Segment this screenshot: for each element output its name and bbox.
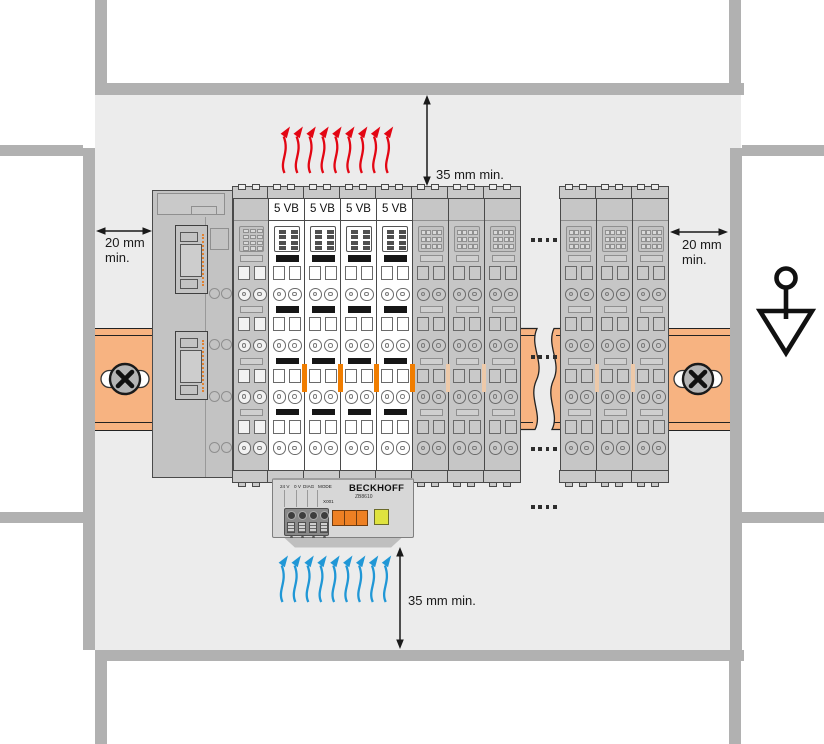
led-indicator bbox=[605, 230, 610, 235]
terminal-slot bbox=[492, 409, 515, 416]
module-top-notch bbox=[238, 184, 246, 190]
module-bottom-tab bbox=[417, 482, 425, 488]
terminal-contact-square bbox=[289, 369, 301, 383]
terminal-screw-contact bbox=[652, 441, 666, 455]
terminal-screw-contact bbox=[360, 288, 374, 302]
terminal-slot bbox=[640, 358, 663, 365]
dimension-label-top: 35 mm min. bbox=[436, 167, 504, 182]
led-indicator bbox=[641, 244, 646, 249]
terminal-screw-contact bbox=[580, 390, 594, 404]
terminal-slot bbox=[492, 358, 515, 365]
terminal-screw-contact-center bbox=[242, 394, 247, 399]
terminal-screw-contact bbox=[381, 339, 395, 353]
terminal-screw-contact-center bbox=[328, 292, 333, 297]
terminal-screw-contact-center bbox=[436, 343, 441, 348]
terminal-slot bbox=[240, 306, 263, 313]
terminal-slot bbox=[604, 306, 627, 313]
led-indicator bbox=[569, 237, 574, 242]
terminal-screw-contact-center bbox=[584, 446, 589, 451]
led-indicator bbox=[641, 237, 646, 242]
terminal-screw-contact bbox=[432, 288, 446, 302]
terminal-contact-square bbox=[345, 369, 357, 383]
dimension-label-right: 20 mm min. bbox=[682, 237, 722, 267]
heat-arrow bbox=[358, 127, 367, 174]
fan-status-block-divider bbox=[344, 510, 345, 527]
terminal-contact-square bbox=[617, 420, 629, 434]
terminal-contact-square bbox=[325, 420, 337, 434]
terminal-screw-contact-center bbox=[472, 292, 477, 297]
terminal-label-band: 5 VB bbox=[341, 199, 376, 221]
terminal-contact-square bbox=[238, 420, 250, 434]
fan-cartridge-base bbox=[278, 538, 408, 548]
terminal-led-block bbox=[602, 226, 628, 252]
terminal-screw-contact-center bbox=[472, 446, 477, 451]
led-indicator bbox=[432, 230, 437, 235]
dimension-arrow-bottom bbox=[395, 547, 405, 649]
terminal-screw-contact bbox=[345, 390, 359, 404]
heat-arrow bbox=[306, 127, 315, 174]
led-indicator bbox=[243, 229, 249, 233]
terminal-contact-square bbox=[581, 369, 593, 383]
terminal-screw-contact bbox=[309, 441, 323, 455]
terminal-screw-contact bbox=[565, 441, 579, 455]
terminal-contact-square bbox=[617, 266, 629, 280]
fan-terminal-label: 0 V bbox=[294, 484, 301, 489]
terminal-release-bar bbox=[312, 358, 335, 365]
terminal-contact-square bbox=[397, 420, 409, 434]
led-indicator bbox=[279, 246, 286, 250]
terminal-screw-contact-center bbox=[313, 394, 318, 399]
heat-arrow bbox=[371, 127, 380, 174]
terminal-contact-square bbox=[325, 317, 337, 331]
terminal-screw-contact bbox=[453, 288, 467, 302]
led-indicator bbox=[291, 241, 298, 245]
terminal-contact-square bbox=[254, 266, 266, 280]
terminal-slot bbox=[568, 409, 591, 416]
ethernet-port-bottom bbox=[180, 385, 198, 395]
terminal-voltage-label: 5 VB bbox=[269, 199, 304, 220]
led-indicator bbox=[432, 237, 437, 242]
led-indicator bbox=[399, 246, 406, 250]
terminal-screw-contact bbox=[324, 441, 338, 455]
terminal-contact-square bbox=[565, 420, 577, 434]
terminal-screw-contact bbox=[565, 339, 579, 353]
terminal-contact-square bbox=[653, 369, 665, 383]
ethernet-port bbox=[175, 225, 208, 294]
terminal-contact-square bbox=[361, 420, 373, 434]
terminal-screw-contact bbox=[504, 441, 518, 455]
led-indicator bbox=[291, 235, 298, 239]
terminal-screw-contact-center bbox=[584, 394, 589, 399]
terminal-release-bar bbox=[348, 306, 371, 313]
terminal-screw-contact-center bbox=[569, 394, 574, 399]
terminal-screw-contact-center bbox=[400, 394, 405, 399]
terminal-screw-contact-center bbox=[641, 343, 646, 348]
terminal-contact-square bbox=[505, 420, 517, 434]
terminal-screw-contact-center bbox=[385, 446, 390, 451]
io-gray-terminal bbox=[484, 199, 520, 470]
led-indicator bbox=[473, 237, 478, 242]
io-white-terminal: 5 VB bbox=[376, 199, 412, 470]
beckhoff-logo: BECKHOFF bbox=[349, 483, 404, 494]
led-indicator bbox=[387, 235, 394, 239]
fan-connector-clamp bbox=[298, 522, 306, 533]
led-indicator bbox=[646, 230, 651, 235]
led-indicator bbox=[437, 230, 442, 235]
terminal-screw-contact-center bbox=[641, 292, 646, 297]
module-bottom-tab bbox=[565, 482, 573, 488]
terminal-screw-contact bbox=[616, 441, 630, 455]
led-indicator bbox=[509, 230, 514, 235]
terminal-screw-contact-center bbox=[257, 446, 262, 451]
terminal-screw-contact bbox=[580, 339, 594, 353]
terminal-contact-square bbox=[653, 317, 665, 331]
terminal-slot bbox=[604, 358, 627, 365]
terminal-contact-square bbox=[254, 420, 266, 434]
terminal-screw-contact bbox=[238, 441, 252, 455]
led-indicator bbox=[250, 235, 256, 239]
led-indicator bbox=[574, 237, 579, 242]
heat-arrow bbox=[319, 127, 328, 174]
led-indicator bbox=[580, 230, 585, 235]
terminal-screw-contact bbox=[396, 441, 410, 455]
terminal-contact-square bbox=[565, 369, 577, 383]
led-indicator bbox=[580, 237, 585, 242]
terminal-screw-contact bbox=[309, 339, 323, 353]
coupler-top-tab bbox=[191, 206, 217, 215]
module-top-notch bbox=[651, 184, 659, 190]
led-indicator bbox=[243, 241, 249, 245]
terminal-slot bbox=[456, 409, 479, 416]
terminal-slot bbox=[456, 306, 479, 313]
terminal-screw-contact-center bbox=[457, 292, 462, 297]
earth-ground-icon bbox=[753, 261, 819, 359]
module-bottom-tab bbox=[601, 482, 609, 488]
terminal-contact-square bbox=[381, 266, 393, 280]
terminal-contact-square bbox=[565, 317, 577, 331]
terminal-screw-contact bbox=[309, 288, 323, 302]
terminal-contact-square bbox=[469, 369, 481, 383]
terminal-slot bbox=[568, 358, 591, 365]
module-top-notch bbox=[287, 184, 295, 190]
terminal-contact-square bbox=[345, 420, 357, 434]
ethernet-port-bottom bbox=[180, 279, 198, 289]
module-top-notch bbox=[381, 184, 389, 190]
terminal-screw-contact-center bbox=[400, 343, 405, 348]
led-indicator bbox=[315, 246, 322, 250]
terminal-screw-contact-center bbox=[349, 394, 354, 399]
led-indicator bbox=[399, 230, 406, 234]
terminal-screw-contact bbox=[417, 390, 431, 404]
led-indicator bbox=[646, 237, 651, 242]
module-top-notch bbox=[359, 184, 367, 190]
terminal-label-band bbox=[234, 199, 268, 221]
module-top-notch bbox=[565, 184, 573, 190]
led-indicator bbox=[363, 235, 370, 239]
module-top-notch bbox=[345, 184, 353, 190]
continuation-dots bbox=[531, 238, 557, 242]
terminal-screw-contact bbox=[360, 441, 374, 455]
module-bottom-tab bbox=[503, 482, 511, 488]
terminal-screw-contact-center bbox=[328, 394, 333, 399]
terminal-led-block bbox=[566, 226, 592, 252]
terminal-screw-contact bbox=[288, 288, 302, 302]
terminal-contact-square bbox=[433, 369, 445, 383]
led-indicator bbox=[657, 244, 662, 249]
dimension-label-left-unit: min. bbox=[105, 250, 130, 265]
terminal-screw-contact-center bbox=[508, 343, 513, 348]
terminal-screw-contact-center bbox=[569, 446, 574, 451]
led-indicator bbox=[504, 244, 509, 249]
continuation-dots bbox=[531, 447, 557, 451]
led-indicator bbox=[437, 244, 442, 249]
led-indicator bbox=[652, 237, 657, 242]
terminal-screw-contact bbox=[396, 339, 410, 353]
module-top-notch bbox=[309, 184, 317, 190]
terminal-contact-square bbox=[453, 266, 465, 280]
led-indicator bbox=[509, 237, 514, 242]
terminal-voltage-label: 5 VB bbox=[341, 199, 376, 220]
terminal-contact-square bbox=[433, 266, 445, 280]
terminal-screw-contact bbox=[489, 390, 503, 404]
terminal-screw-contact bbox=[381, 390, 395, 404]
terminal-screw-contact bbox=[273, 288, 287, 302]
led-indicator bbox=[616, 244, 621, 249]
terminal-screw-contact-center bbox=[421, 292, 426, 297]
terminal-screw-contact bbox=[273, 390, 287, 404]
terminal-coding-strip-light bbox=[482, 364, 486, 392]
io-white-terminal: 5 VB bbox=[268, 199, 304, 470]
terminal-screw-contact-center bbox=[242, 292, 247, 297]
led-indicator bbox=[421, 230, 426, 235]
fan-cartridge: 24 V 0 V DIAG MODE X001 BECKHOFF ZB8610 bbox=[272, 478, 414, 538]
fan-status-block-divider bbox=[356, 510, 357, 527]
continuation-dots bbox=[531, 505, 557, 509]
module-bottom-tab bbox=[579, 482, 587, 488]
ethernet-port-body bbox=[180, 244, 202, 277]
terminal-contact-square bbox=[453, 317, 465, 331]
cool-airflow-arrows bbox=[276, 550, 398, 608]
terminal-screw-contact-center bbox=[364, 292, 369, 297]
terminal-contact-square bbox=[581, 420, 593, 434]
terminal-contact-square bbox=[325, 266, 337, 280]
terminal-led-block bbox=[310, 226, 336, 252]
terminal-screw-contact-center bbox=[656, 292, 661, 297]
module-top-notch bbox=[503, 184, 511, 190]
terminal-contact-square bbox=[361, 266, 373, 280]
terminal-screw-contact-center bbox=[569, 292, 574, 297]
terminal-screw-contact bbox=[468, 288, 482, 302]
terminal-slot bbox=[240, 409, 263, 416]
terminal-screw-contact bbox=[601, 441, 615, 455]
terminal-screw-contact-center bbox=[349, 292, 354, 297]
ethernet-port bbox=[175, 331, 208, 400]
fan-label-leader-line bbox=[284, 490, 285, 507]
terminal-contact-square bbox=[433, 317, 445, 331]
led-indicator bbox=[243, 235, 249, 239]
terminal-contact-square bbox=[601, 369, 613, 383]
led-indicator bbox=[257, 235, 263, 239]
continuation-dots bbox=[531, 355, 557, 359]
ethernet-port-pins bbox=[202, 340, 204, 392]
terminal-screw-contact-center bbox=[457, 446, 462, 451]
heat-airflow-arrows bbox=[278, 121, 396, 179]
terminal-screw-contact-center bbox=[257, 292, 262, 297]
terminal-screw-contact-center bbox=[656, 343, 661, 348]
led-indicator bbox=[585, 230, 590, 235]
led-indicator bbox=[652, 230, 657, 235]
terminal-screw-contact bbox=[288, 441, 302, 455]
module-group-edge bbox=[668, 199, 669, 470]
led-indicator bbox=[351, 230, 358, 234]
terminal-screw-contact bbox=[601, 339, 615, 353]
module-top-notch bbox=[601, 184, 609, 190]
io-white-terminal: 5 VB bbox=[304, 199, 340, 470]
terminal-screw-contact bbox=[565, 288, 579, 302]
terminal-contact-square bbox=[289, 317, 301, 331]
terminal-screw-contact-center bbox=[584, 292, 589, 297]
led-indicator bbox=[498, 244, 503, 249]
module-bottom-tab bbox=[252, 482, 260, 488]
led-indicator bbox=[569, 230, 574, 235]
terminal-contact-square bbox=[637, 317, 649, 331]
led-indicator bbox=[657, 230, 662, 235]
terminal-contact-square bbox=[581, 266, 593, 280]
terminal-led-block bbox=[638, 226, 664, 252]
cool-arrow bbox=[356, 556, 365, 603]
cool-arrow bbox=[304, 556, 313, 603]
terminal-contact-square bbox=[309, 420, 321, 434]
terminal-screw-contact bbox=[238, 339, 252, 353]
io-gray-terminal bbox=[560, 199, 596, 470]
terminal-screw-contact-center bbox=[620, 446, 625, 451]
terminal-screw-contact bbox=[468, 441, 482, 455]
terminal-screw-contact-center bbox=[421, 343, 426, 348]
led-indicator bbox=[504, 237, 509, 242]
terminal-screw-contact bbox=[417, 339, 431, 353]
led-indicator bbox=[363, 241, 370, 245]
led-indicator bbox=[243, 246, 249, 250]
terminal-screw-contact-center bbox=[508, 292, 513, 297]
terminal-contact-square bbox=[345, 266, 357, 280]
led-indicator bbox=[363, 246, 370, 250]
fan-terminal-label: 24 V bbox=[280, 484, 289, 489]
terminal-contact-square bbox=[289, 266, 301, 280]
led-indicator bbox=[493, 230, 498, 235]
terminal-contact-square bbox=[397, 266, 409, 280]
terminal-screw-contact bbox=[637, 288, 651, 302]
terminal-screw-contact-center bbox=[313, 292, 318, 297]
terminal-contact-square bbox=[417, 317, 429, 331]
terminal-screw-contact-center bbox=[242, 343, 247, 348]
terminal-screw-contact-center bbox=[292, 446, 297, 451]
terminal-screw-contact-center bbox=[277, 292, 282, 297]
terminal-screw-contact bbox=[360, 339, 374, 353]
terminal-contact-square bbox=[309, 317, 321, 331]
terminal-release-bar bbox=[312, 255, 335, 262]
led-indicator bbox=[468, 237, 473, 242]
terminal-led-block bbox=[382, 226, 408, 252]
terminal-screw-contact bbox=[345, 339, 359, 353]
coupler-contact-circle bbox=[209, 339, 220, 350]
led-indicator bbox=[610, 244, 615, 249]
terminal-led-block bbox=[346, 226, 372, 252]
led-indicator bbox=[291, 230, 298, 234]
heat-arrow bbox=[345, 127, 354, 174]
cool-arrow bbox=[317, 556, 326, 603]
terminal-contact-square bbox=[637, 369, 649, 383]
dimension-label-bottom: 35 mm min. bbox=[408, 593, 476, 608]
fan-connector-pin bbox=[287, 511, 296, 520]
terminal-screw-contact-center bbox=[641, 394, 646, 399]
terminal-screw-contact-center bbox=[457, 343, 462, 348]
terminal-contact-square bbox=[489, 420, 501, 434]
led-indicator bbox=[399, 235, 406, 239]
terminal-screw-contact bbox=[273, 339, 287, 353]
terminal-coding-strip bbox=[410, 364, 415, 392]
led-indicator bbox=[351, 246, 358, 250]
fan-terminal-label: DIAG bbox=[303, 484, 314, 489]
terminal-screw-contact-center bbox=[493, 292, 498, 297]
terminal-screw-contact bbox=[637, 339, 651, 353]
terminal-screw-contact-center bbox=[257, 343, 262, 348]
cool-arrow bbox=[330, 556, 339, 603]
terminal-screw-contact bbox=[324, 339, 338, 353]
module-top-notch bbox=[637, 184, 645, 190]
led-indicator bbox=[426, 237, 431, 242]
led-indicator bbox=[641, 230, 646, 235]
module-bottom-tab bbox=[238, 482, 246, 488]
terminal-screw-contact bbox=[381, 441, 395, 455]
terminal-contact-square bbox=[581, 317, 593, 331]
led-indicator bbox=[351, 241, 358, 245]
terminal-screw-contact-center bbox=[493, 446, 498, 451]
terminal-release-bar bbox=[348, 358, 371, 365]
terminal-slot bbox=[240, 358, 263, 365]
ethernet-port-body bbox=[180, 350, 202, 383]
led-indicator bbox=[657, 237, 662, 242]
terminal-screw-contact bbox=[652, 339, 666, 353]
led-indicator bbox=[580, 244, 585, 249]
led-indicator bbox=[421, 237, 426, 242]
terminal-screw-contact-center bbox=[364, 446, 369, 451]
terminal-screw-contact bbox=[453, 339, 467, 353]
led-indicator bbox=[574, 244, 579, 249]
terminal-screw-contact-center bbox=[292, 343, 297, 348]
cool-arrow bbox=[369, 556, 378, 603]
terminal-contact-square bbox=[601, 317, 613, 331]
terminal-screw-contact-center bbox=[364, 394, 369, 399]
terminal-screw-contact bbox=[504, 390, 518, 404]
terminal-screw-contact bbox=[253, 339, 267, 353]
coupler-contact-circle bbox=[221, 288, 232, 299]
heat-arrow bbox=[332, 127, 341, 174]
terminal-slot bbox=[420, 409, 443, 416]
terminal-slot bbox=[492, 306, 515, 313]
led-indicator bbox=[315, 235, 322, 239]
terminal-screw-contact-center bbox=[277, 394, 282, 399]
led-indicator bbox=[399, 241, 406, 245]
terminal-screw-contact bbox=[396, 390, 410, 404]
terminal-contact-square bbox=[273, 420, 285, 434]
terminal-led-block bbox=[418, 226, 444, 252]
terminal-coding-strip bbox=[302, 364, 307, 392]
terminal-screw-contact-center bbox=[400, 446, 405, 451]
terminal-screw-contact-center bbox=[277, 343, 282, 348]
led-indicator bbox=[437, 237, 442, 242]
terminal-screw-contact bbox=[432, 339, 446, 353]
terminal-slot bbox=[420, 306, 443, 313]
